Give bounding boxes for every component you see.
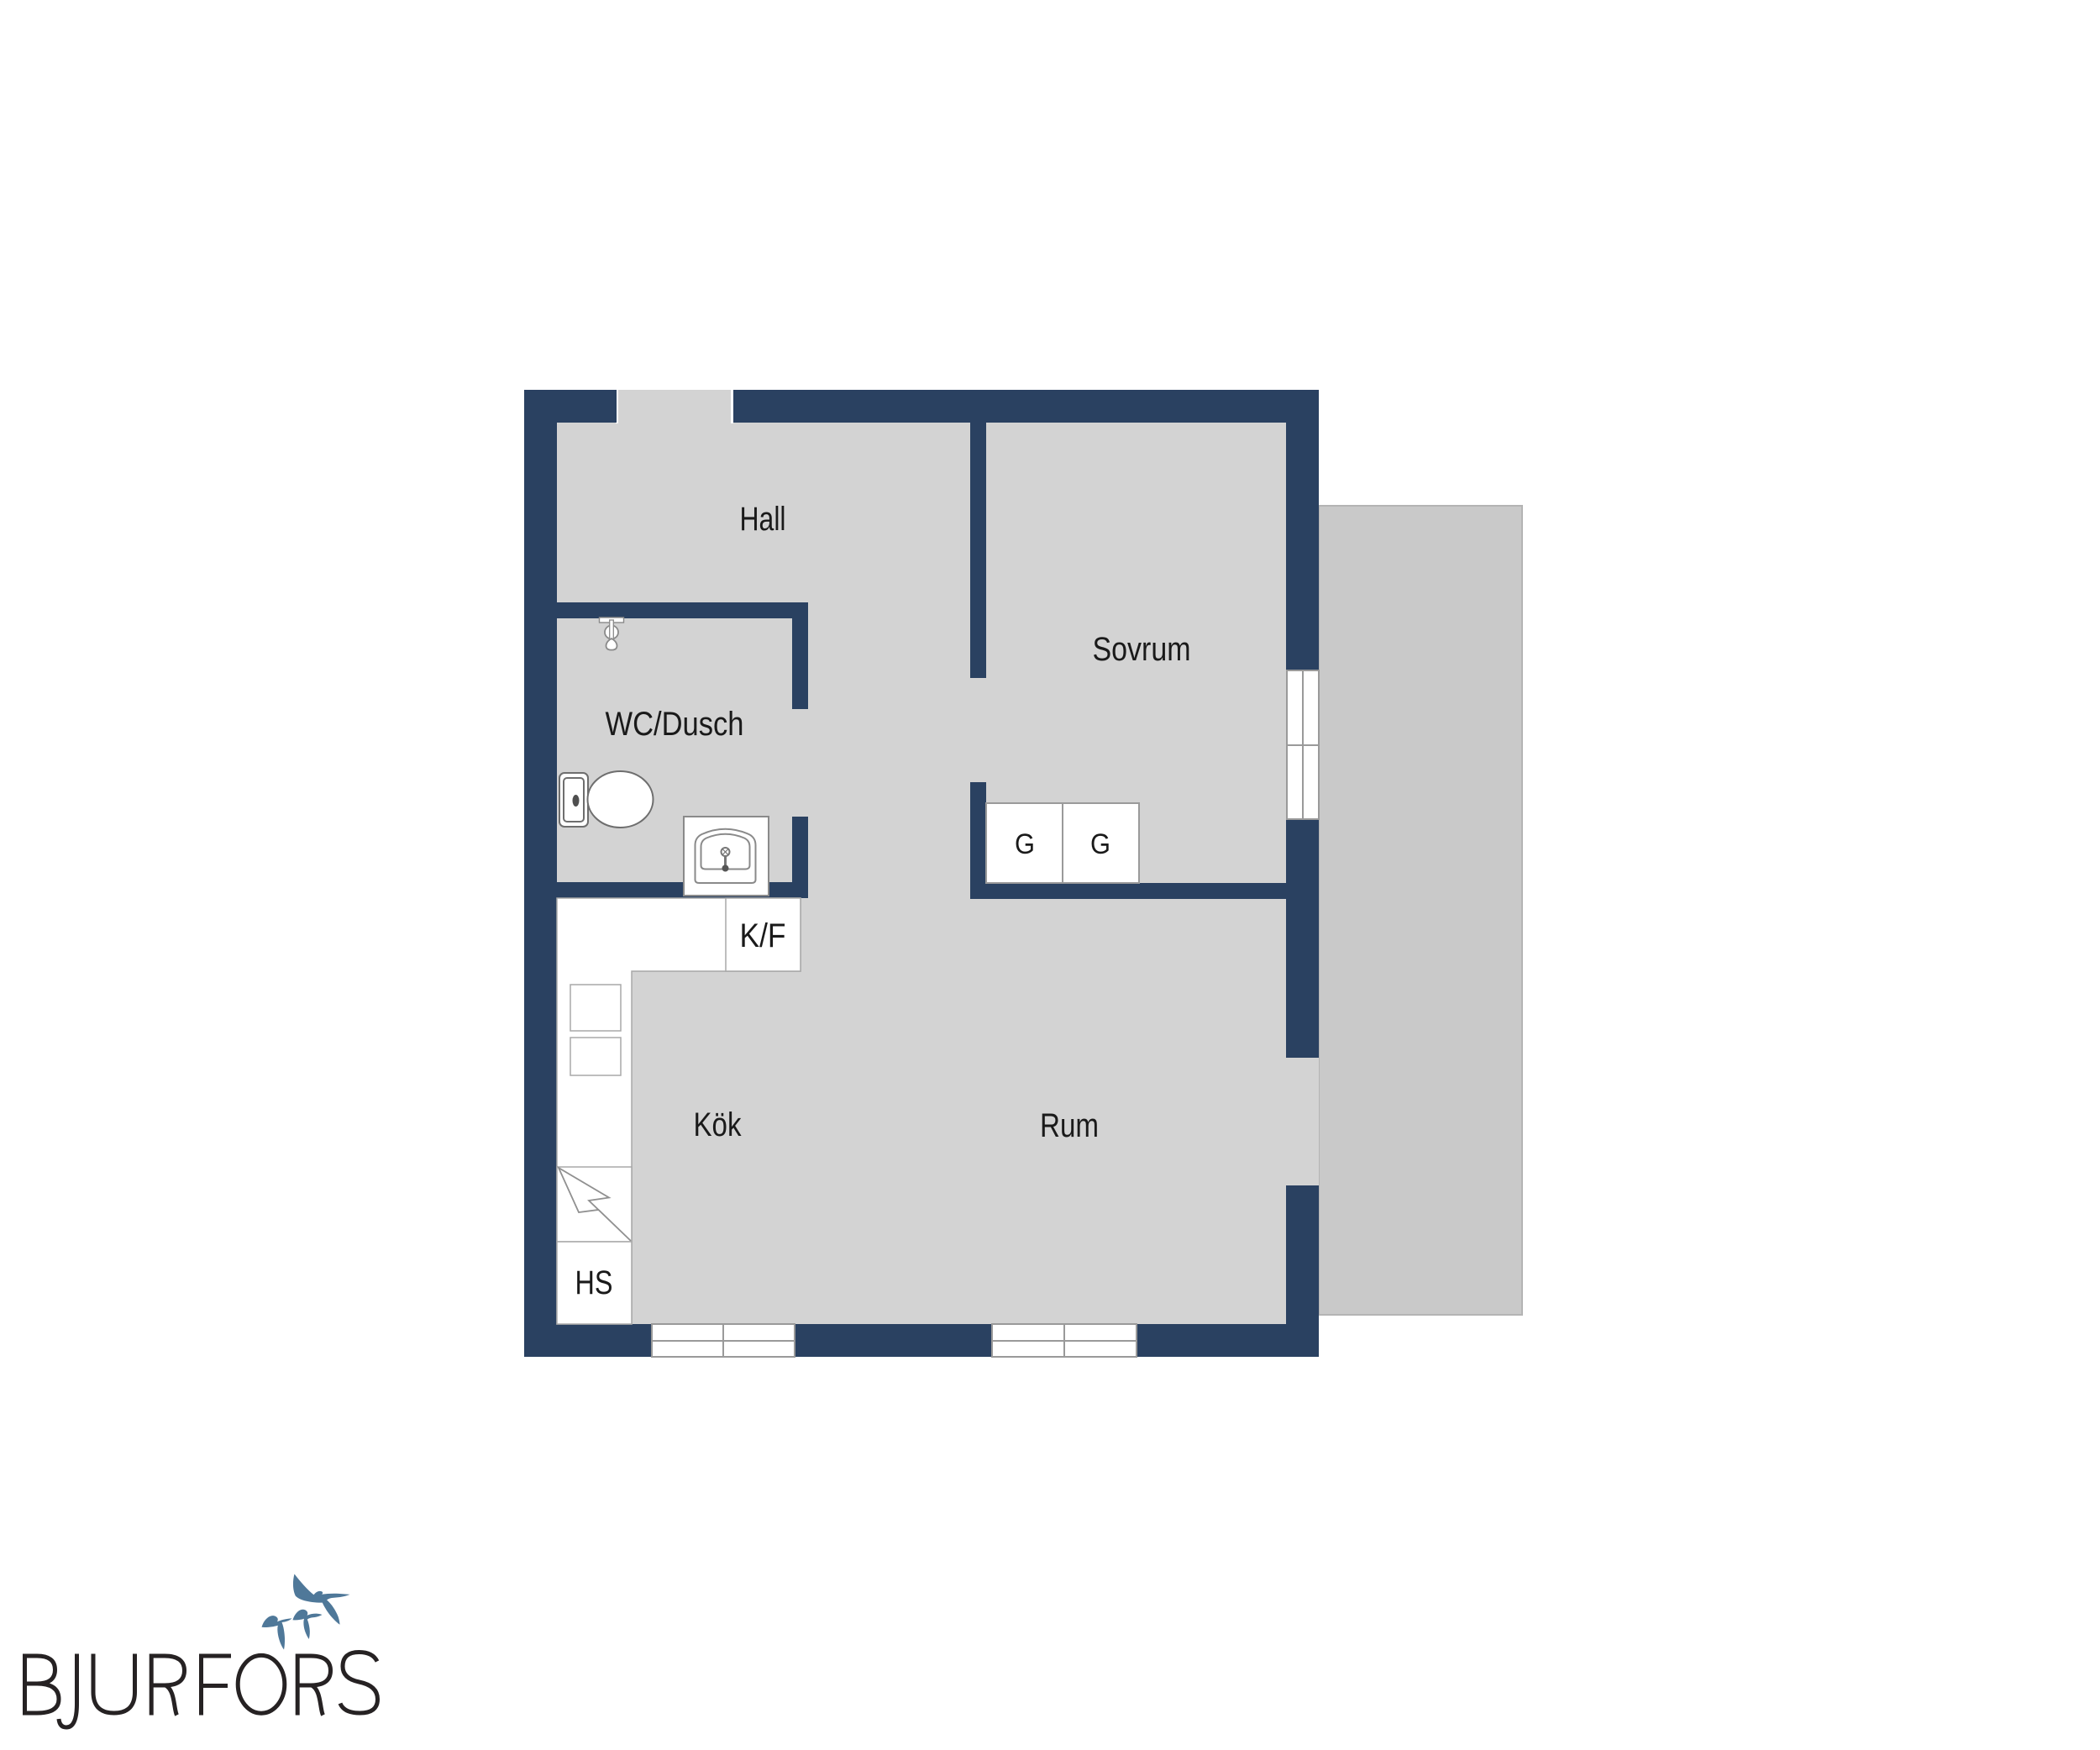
svg-text:G: G — [1090, 828, 1110, 860]
svg-text:HS: HS — [575, 1264, 613, 1301]
svg-text:G: G — [1015, 828, 1035, 860]
svg-text:Kök: Kök — [694, 1106, 743, 1143]
svg-text:K/F: K/F — [740, 917, 786, 954]
svg-text:Rum: Rum — [1040, 1107, 1099, 1144]
svg-text:WC/Dusch: WC/Dusch — [606, 706, 744, 743]
svg-text:Sovrum: Sovrum — [1093, 631, 1191, 668]
svg-text:Hall: Hall — [740, 501, 786, 538]
